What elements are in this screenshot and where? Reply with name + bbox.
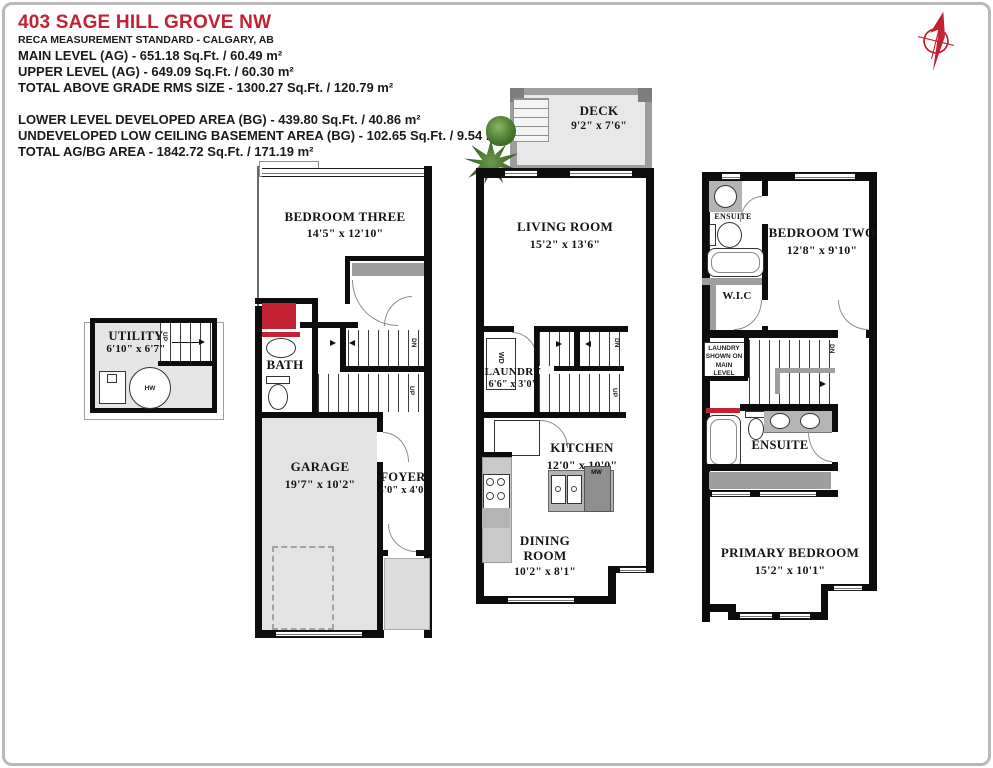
stair-arrow-right-icon	[820, 381, 826, 387]
primary-bedroom-dims: 15'2" x 10'1"	[716, 563, 864, 578]
primary-window	[740, 613, 772, 619]
bathtub	[707, 248, 764, 277]
closet-sliding-door	[712, 491, 750, 497]
bedroom-two-door-opening	[838, 330, 866, 338]
vanity-sink	[714, 185, 737, 208]
primary-ensuite-label: ENSUITE	[744, 438, 816, 452]
upper-level-plan: ENSUITE BEDROOM TWO 12'8" x 9'10" W.I.C …	[0, 0, 993, 768]
knee-wall-marker	[706, 408, 740, 413]
closet-north-wall	[702, 464, 838, 471]
toilet-bowl	[748, 418, 764, 440]
primary-window	[780, 613, 810, 619]
closet-shelf	[709, 472, 831, 489]
primary-window-right	[834, 585, 862, 591]
bedroom-two-window	[795, 173, 855, 180]
bedroom-two-label: BEDROOM TWO	[760, 226, 884, 241]
vanity-sink	[770, 413, 790, 429]
ensuite-door-opening	[832, 432, 838, 462]
primary-ensuite-door-swing	[808, 432, 832, 462]
stair-railing-return	[775, 368, 780, 394]
stair-railing	[775, 368, 835, 373]
stairs-dn-label: DN	[828, 344, 835, 353]
closet-sliding-door	[760, 491, 816, 497]
wic-door-swing	[734, 300, 762, 330]
laundry-note: LAUNDRY SHOWN ON MAIN LEVEL	[705, 345, 743, 379]
primary-bedroom-label: PRIMARY BEDROOM	[716, 546, 864, 561]
toilet-bowl	[717, 222, 742, 248]
bathtub-basin	[710, 419, 737, 465]
note-box-wall-south	[702, 376, 748, 381]
ensuite-two-label: ENSUITE	[702, 213, 764, 222]
wic-lining	[710, 278, 716, 334]
toilet-tank	[745, 411, 765, 418]
ensuite-window	[722, 173, 740, 180]
vanity-sink	[800, 413, 820, 429]
primary-bathtub	[706, 415, 741, 469]
wic-door-opening	[762, 300, 768, 326]
toilet-tank	[709, 224, 716, 246]
bathtub-basin	[711, 252, 760, 273]
bedroom-two-door-swing	[838, 300, 868, 330]
floor-plan-sheet: 403 SAGE HILL GROVE NW RECA MEASUREMENT …	[0, 0, 993, 768]
bedroom-two-dims: 12'8" x 9'10"	[760, 243, 884, 258]
stair-south-wall	[740, 404, 838, 411]
